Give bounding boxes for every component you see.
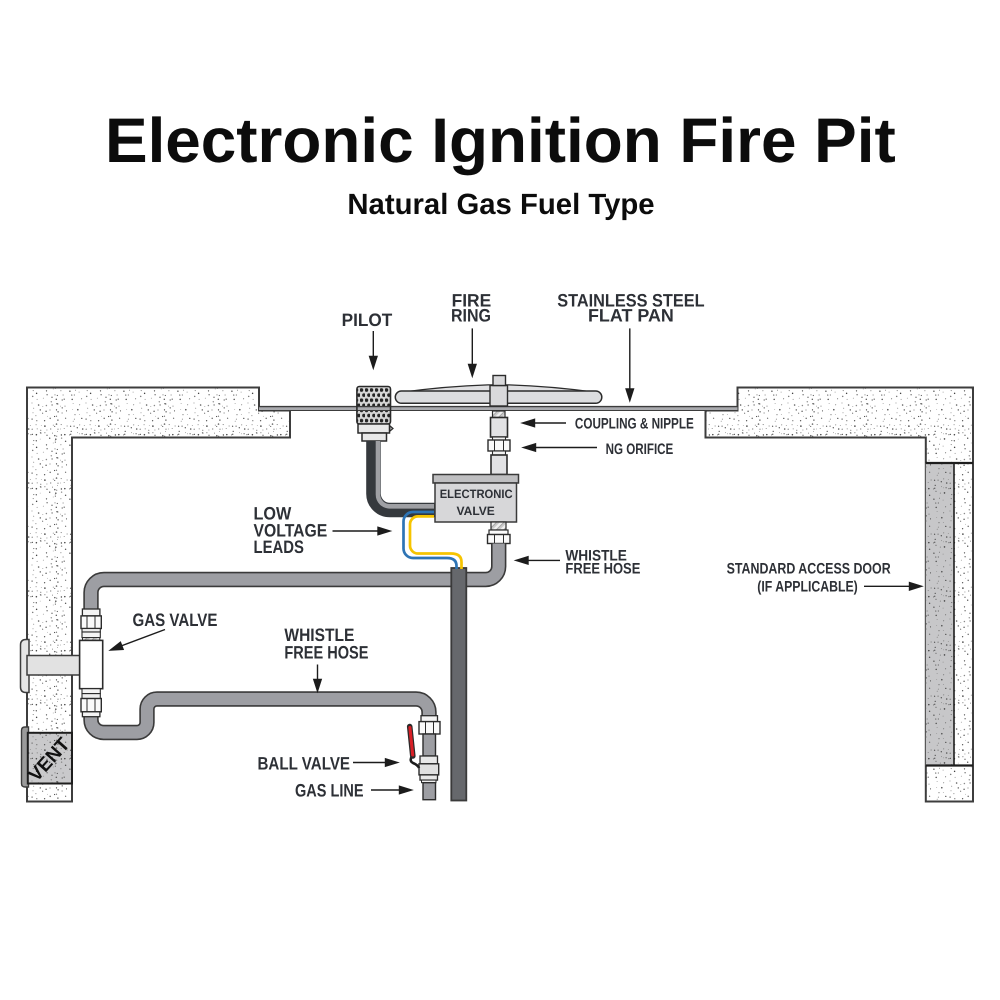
svg-text:NG ORIFICE: NG ORIFICE: [606, 441, 674, 458]
svg-text:PILOT: PILOT: [342, 310, 393, 330]
svg-text:FLAT PAN: FLAT PAN: [588, 306, 674, 326]
svg-text:GAS LINE: GAS LINE: [295, 781, 364, 801]
svg-text:Natural Gas Fuel Type: Natural Gas Fuel Type: [347, 188, 654, 221]
svg-text:Electronic Ignition Fire Pit: Electronic Ignition Fire Pit: [105, 106, 896, 176]
svg-text:FREE HOSE: FREE HOSE: [565, 561, 640, 578]
svg-text:GAS VALVE: GAS VALVE: [133, 610, 218, 630]
svg-text:RING: RING: [451, 306, 491, 326]
svg-text:VALVE: VALVE: [457, 504, 495, 518]
svg-text:COUPLING & NIPPLE: COUPLING & NIPPLE: [575, 415, 694, 432]
svg-text:FREE HOSE: FREE HOSE: [284, 642, 368, 662]
svg-text:STANDARD ACCESS DOOR: STANDARD ACCESS DOOR: [727, 561, 891, 578]
svg-text:LEADS: LEADS: [254, 537, 304, 557]
svg-text:ELECTRONIC: ELECTRONIC: [440, 487, 513, 501]
svg-text:(IF APPLICABLE): (IF APPLICABLE): [757, 579, 857, 596]
svg-text:BALL VALVE: BALL VALVE: [258, 754, 351, 774]
